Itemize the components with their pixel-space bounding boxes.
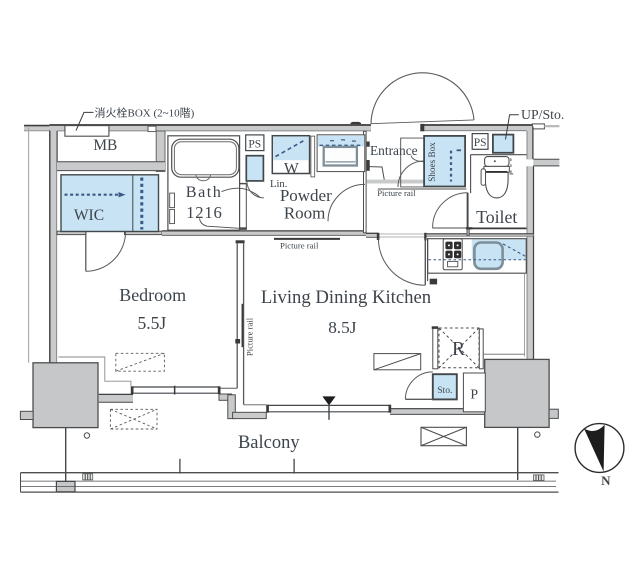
svg-text:消火栓BOX (2~10階): 消火栓BOX (2~10階) <box>95 106 195 120</box>
svg-text:N: N <box>601 473 611 488</box>
svg-text:Picture rail: Picture rail <box>244 317 254 356</box>
svg-text:Sto.: Sto. <box>437 385 452 396</box>
svg-text:P: P <box>470 386 478 401</box>
svg-text:MB: MB <box>93 137 117 154</box>
svg-text:5.5J: 5.5J <box>137 313 166 333</box>
svg-text:PS: PS <box>474 137 487 149</box>
svg-text:1216: 1216 <box>186 203 222 222</box>
svg-text:Picture rail: Picture rail <box>377 188 416 198</box>
svg-text:Living Dining Kitchen: Living Dining Kitchen <box>261 287 432 308</box>
svg-text:Powder: Powder <box>280 186 332 205</box>
svg-text:Shoes Box: Shoes Box <box>427 142 437 182</box>
svg-text:Picture rail: Picture rail <box>280 240 319 250</box>
svg-text:WIC: WIC <box>74 207 104 224</box>
svg-text:Balcony: Balcony <box>238 433 300 453</box>
svg-text:UP/Sto.: UP/Sto. <box>521 107 564 122</box>
svg-text:PS: PS <box>248 138 261 150</box>
svg-text:Room: Room <box>284 204 326 223</box>
svg-text:8.5J: 8.5J <box>328 318 356 337</box>
svg-text:Entrance: Entrance <box>370 143 418 158</box>
svg-text:Bath: Bath <box>186 183 223 201</box>
svg-text:Toilet: Toilet <box>476 207 517 227</box>
svg-text:W: W <box>284 160 299 177</box>
svg-text:R: R <box>452 339 465 360</box>
svg-text:Bedroom: Bedroom <box>119 285 186 305</box>
